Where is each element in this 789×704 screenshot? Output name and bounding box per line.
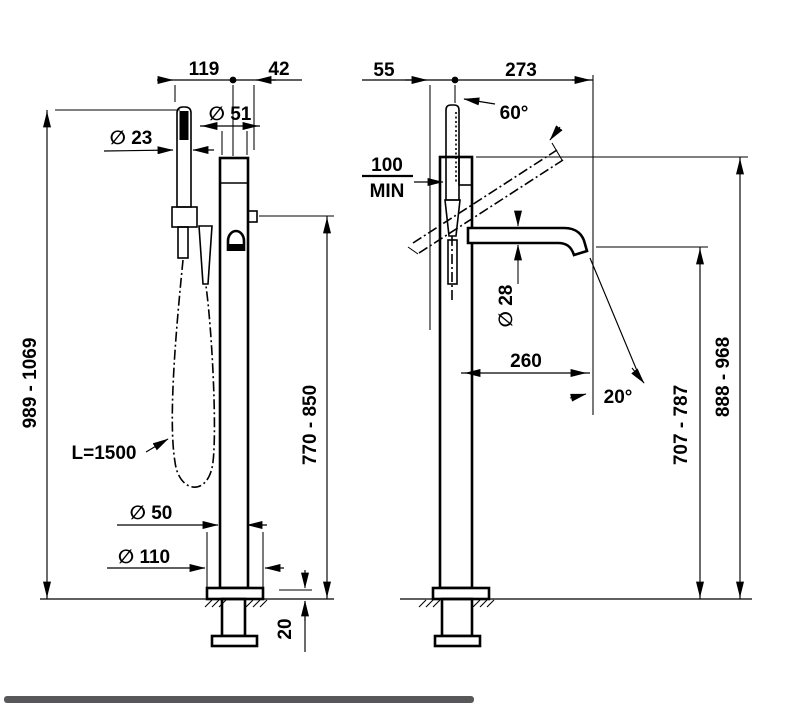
- dim-side-spout-reach: 260: [510, 351, 542, 372]
- dim-side-spout-height: 707 - 787: [671, 385, 692, 465]
- side-handshower: [445, 105, 472, 302]
- dim-front-hose-length: L=1500: [72, 443, 137, 464]
- dim-front-base-height: 20: [275, 618, 296, 639]
- front-floor-hatch: [205, 600, 267, 607]
- front-hose: [172, 260, 214, 487]
- dim-front-width-42: 42: [268, 59, 289, 80]
- side-handshower-holder: [459, 157, 472, 185]
- dim-front-handshower-diameter: ∅ 23: [110, 128, 153, 149]
- front-handshower: [172, 107, 214, 487]
- side-spout: [468, 228, 587, 255]
- front-hose-spring: [199, 226, 212, 284]
- side-base-flange: [433, 588, 489, 599]
- front-handshower-handle: [178, 227, 188, 258]
- dim-front-base-diameter: ∅ 110: [118, 547, 170, 568]
- side-dimensions: 55 273 60° 100 MIN ∅ 28 260: [362, 60, 748, 599]
- front-view: 989 - 1069 119 42 ∅ 23 ∅ 51 L=1500: [20, 59, 334, 652]
- front-underfloor-pipe: [222, 599, 245, 636]
- side-base-plate: [435, 636, 480, 646]
- dim-side-pullout-angle: 60°: [500, 103, 529, 124]
- dim-side-spout-angle: 20°: [604, 387, 633, 408]
- technical-drawing-page: 989 - 1069 119 42 ∅ 23 ∅ 51 L=1500: [0, 0, 789, 704]
- front-base-flange: [207, 588, 263, 599]
- dim-front-width-119: 119: [189, 59, 220, 80]
- dim-axis-dot: [230, 77, 237, 84]
- side-view: 55 273 60° 100 MIN ∅ 28 260: [362, 60, 752, 646]
- dim-front-column-top-diameter: ∅ 51: [209, 104, 252, 125]
- bath-mixer-dimension-drawing: 989 - 1069 119 42 ∅ 23 ∅ 51 L=1500: [0, 0, 789, 704]
- side-floor-hatch: [419, 600, 494, 607]
- side-underfloor-pipe: [442, 599, 472, 636]
- side-base: [400, 588, 752, 646]
- dim-front-total-height: 989 - 1069: [20, 338, 41, 429]
- dim-side-handshower-height: 888 - 968: [713, 337, 734, 417]
- front-diverter-knob: [248, 211, 257, 222]
- bottom-divider-bar: [4, 696, 474, 703]
- dim-front-outlet-height: 770 - 850: [300, 385, 321, 465]
- dim-side-wall-offset: 55: [373, 60, 395, 81]
- dim-front-column-diameter: ∅ 50: [130, 503, 173, 524]
- dim-side-min-clearance-value: 100: [371, 155, 403, 176]
- front-handshower-holder: [172, 207, 197, 227]
- dim-side-reach-total: 273: [505, 60, 537, 81]
- front-base-plate: [212, 636, 257, 646]
- dim-side-spout-diameter: ∅ 28: [496, 285, 517, 328]
- dim-side-min-clearance-label: MIN: [370, 181, 405, 202]
- front-spout-aerator: [228, 244, 244, 251]
- dim-axis-dot-side: [452, 77, 459, 84]
- front-column: [220, 158, 257, 588]
- front-handshower-sprayface: [180, 111, 189, 140]
